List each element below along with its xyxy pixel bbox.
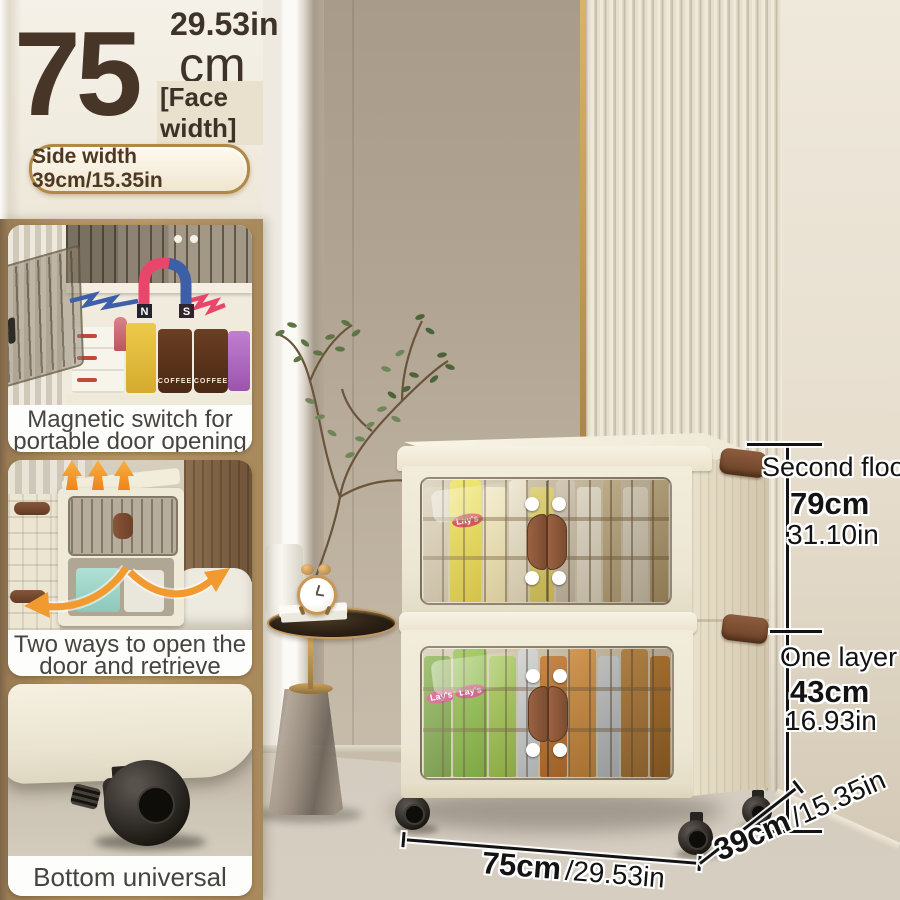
door-handle-right — [548, 686, 568, 742]
shelf-front-edge — [66, 395, 252, 405]
purple-pack — [228, 331, 250, 391]
upper-unit-door: Lay's — [420, 477, 672, 605]
arrowhead-left — [24, 592, 50, 618]
face-width-value: 75 — [14, 14, 137, 134]
feature-card-two-ways: Two ways to open the door and retrieve i… — [8, 460, 252, 676]
caption-line: Bottom universal pulley — [8, 860, 252, 896]
product-infographic: Lay's Lay'sLay's — [0, 0, 900, 900]
clock-bell-right — [318, 564, 331, 575]
universal-pulley-wheel — [104, 760, 190, 846]
magnetic-switch-photo: COFFEE COFFEE N S — [8, 225, 252, 405]
lid-up-arrows — [62, 460, 134, 490]
tick-top — [747, 443, 822, 446]
snap-button — [525, 497, 539, 511]
second-floor-cm: 79cm — [790, 486, 869, 522]
yellow-box — [126, 323, 156, 393]
pulley-photo — [8, 684, 252, 856]
wheel-hub — [687, 829, 708, 850]
knob — [190, 235, 198, 243]
side-width-pill: Side width 39cm/15.35in — [29, 144, 250, 194]
coffee-label: COFFEE — [158, 378, 192, 385]
lower-unit-door: Lay'sLay's — [420, 646, 674, 780]
feature-caption-pulley: Bottom universal pulley — [8, 856, 252, 896]
caster-wheel-front-left — [395, 795, 430, 830]
orange-arrows — [8, 460, 252, 630]
second-floor-label: Second floor — [762, 452, 900, 483]
door-handle-right — [547, 514, 567, 570]
snap-button — [553, 743, 567, 757]
caption-line: door and retrieve items — [8, 656, 252, 676]
knob — [174, 235, 182, 243]
magnet-icon: N S — [66, 249, 228, 323]
tick-middle — [770, 630, 822, 633]
snap-button — [526, 669, 540, 683]
door-handle-left — [528, 686, 548, 742]
width-inches: /29.53in — [564, 855, 666, 894]
header-block: 75 29.53in cm [Face width] Side width 39… — [0, 0, 263, 219]
snap-button — [552, 497, 566, 511]
height-dimension-line — [786, 445, 789, 833]
lower-door-latch — [519, 669, 575, 757]
wheel-hub — [137, 786, 175, 824]
side-carry-handle-lower — [721, 613, 770, 644]
feature-card-pulley: Bottom universal pulley — [8, 684, 252, 896]
one-layer-label: One layer — [780, 642, 897, 673]
upper-door-latch — [518, 497, 574, 585]
coffee-bag: COFFEE — [158, 329, 192, 393]
door-handle — [8, 317, 16, 345]
two-ways-photo — [8, 460, 252, 630]
clock-hour-hand — [316, 593, 324, 596]
side-width-text: Side width 39cm/15.35in — [32, 145, 247, 193]
caption-line: portable door opening — [8, 431, 252, 452]
magnet-south-label: S — [183, 306, 190, 318]
coffee-bag: COFFEE — [194, 329, 228, 393]
snap-button — [526, 743, 540, 757]
door-handle-left — [527, 514, 547, 570]
feature-card-magnetic: COFFEE COFFEE N S Magneti — [8, 225, 252, 452]
box-label — [77, 378, 97, 382]
one-layer-inches: 16.93in — [785, 705, 877, 737]
coffee-label: COFFEE — [194, 378, 228, 385]
feature-caption-magnetic: Magnetic switch for portable door openin… — [8, 405, 252, 452]
clock-bell-left — [301, 564, 314, 575]
wheel-hub — [404, 804, 425, 825]
second-floor-inches: 31.10in — [787, 519, 879, 551]
snap-button — [552, 571, 566, 585]
face-width-caption: [Face width] — [157, 81, 263, 145]
snap-button — [553, 669, 567, 683]
width-cm: 75cm — [481, 845, 563, 886]
lower-unit-base — [401, 782, 693, 798]
magnet-north-label: N — [141, 306, 149, 318]
snap-button — [525, 571, 539, 585]
table-stem — [308, 633, 313, 689]
caster-wheel-front-right — [678, 820, 713, 855]
feature-caption-two-ways: Two ways to open the door and retrieve i… — [8, 630, 252, 676]
side-carry-handle-upper — [719, 447, 768, 478]
